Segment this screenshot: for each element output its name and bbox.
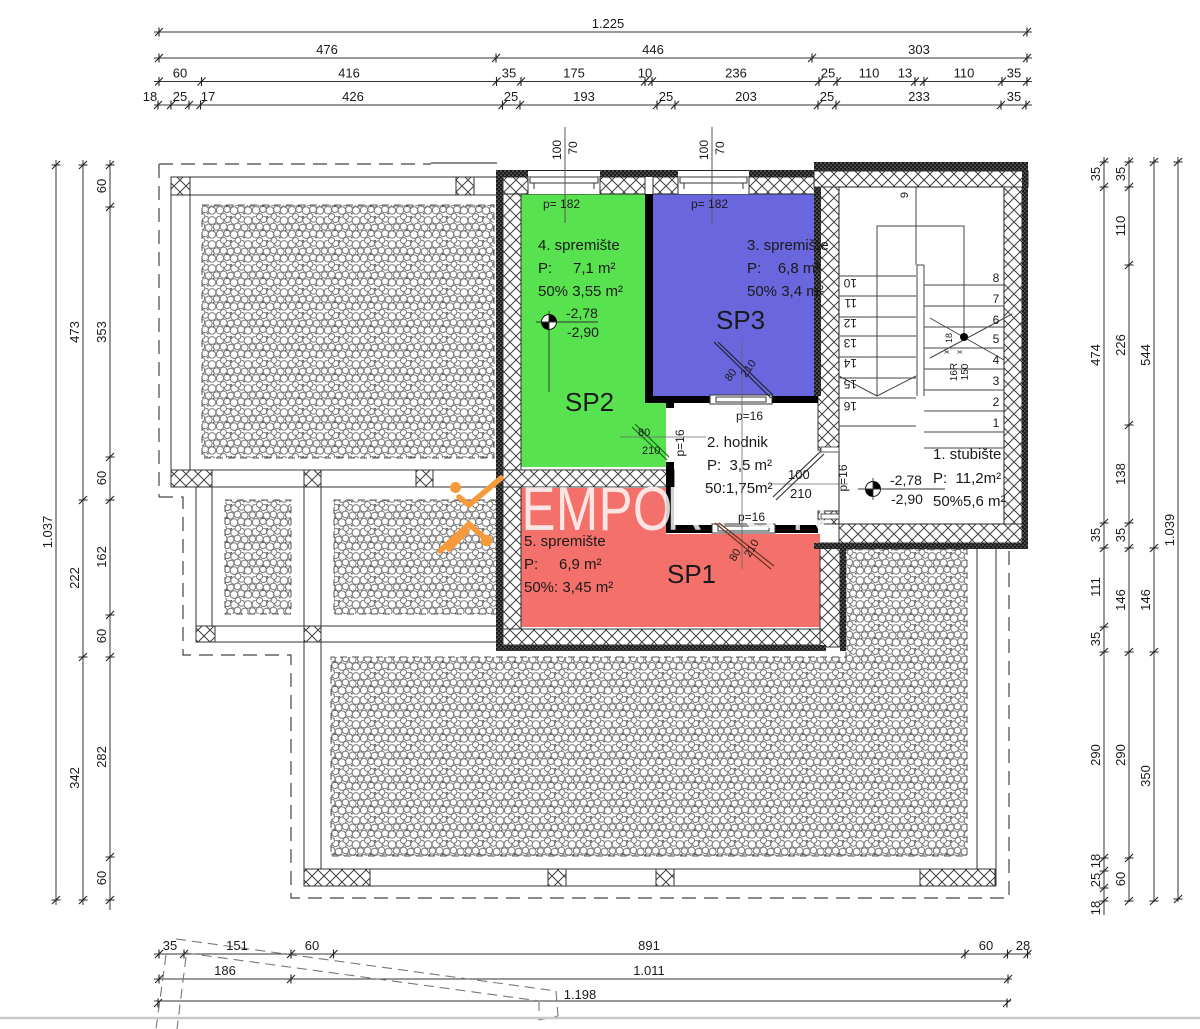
svg-text:18: 18 — [1088, 854, 1103, 868]
svg-text:146: 146 — [1113, 589, 1128, 611]
svg-text:25: 25 — [821, 66, 835, 81]
svg-text:186: 186 — [214, 963, 236, 978]
svg-text:28: 28 — [1016, 938, 1030, 953]
svg-text:35: 35 — [1113, 528, 1128, 542]
svg-text:1.037: 1.037 — [40, 516, 55, 549]
svg-text:-2,78: -2,78 — [890, 472, 922, 488]
svg-text:x: x — [942, 350, 951, 354]
svg-text:-2,90: -2,90 — [891, 491, 923, 507]
svg-text:35: 35 — [1088, 167, 1103, 181]
svg-text:473: 473 — [67, 321, 82, 343]
svg-text:2: 2 — [993, 395, 1000, 409]
svg-text:151: 151 — [226, 938, 248, 953]
svg-text:7: 7 — [993, 292, 1000, 306]
svg-text:50%5,6 m²: 50%5,6 m² — [933, 493, 1006, 510]
svg-text:25: 25 — [820, 89, 834, 104]
svg-text:474: 474 — [1088, 344, 1103, 366]
svg-text:150: 150 — [960, 363, 971, 380]
svg-text:146: 146 — [1138, 589, 1153, 611]
svg-text:303: 303 — [908, 42, 930, 57]
svg-text:282: 282 — [94, 746, 109, 768]
svg-text:SP2: SP2 — [565, 387, 614, 417]
svg-text:35: 35 — [1088, 528, 1103, 542]
svg-text:100: 100 — [697, 140, 711, 160]
svg-text:138: 138 — [1113, 463, 1128, 485]
svg-text:18: 18 — [1088, 901, 1103, 915]
svg-text:5. spremište: 5. spremište — [524, 533, 606, 550]
svg-text:25: 25 — [1088, 873, 1103, 887]
svg-text:226: 226 — [1113, 334, 1128, 356]
svg-text:10: 10 — [638, 66, 652, 81]
svg-text:3. spremište: 3. spremište — [747, 237, 829, 254]
svg-text:P: 6,8 m²: P: 6,8 m² — [747, 260, 820, 277]
svg-text:11: 11 — [844, 296, 857, 310]
svg-text:SP1: SP1 — [667, 559, 716, 589]
svg-text:1: 1 — [993, 416, 1000, 430]
svg-text:350: 350 — [1138, 765, 1153, 787]
svg-text:25: 25 — [504, 89, 518, 104]
svg-text:16R: 16R — [949, 363, 960, 381]
svg-text:426: 426 — [342, 89, 364, 104]
svg-text:70: 70 — [713, 141, 727, 155]
svg-text:60: 60 — [94, 471, 109, 485]
svg-text:100: 100 — [550, 140, 564, 160]
svg-text:60: 60 — [94, 629, 109, 643]
svg-text:1.225: 1.225 — [592, 16, 625, 31]
svg-text:4. spremište: 4. spremište — [538, 237, 620, 254]
svg-text:12: 12 — [843, 316, 857, 330]
svg-text:p= 182: p= 182 — [691, 197, 728, 211]
svg-text:193: 193 — [573, 89, 595, 104]
svg-text:891: 891 — [638, 938, 660, 953]
svg-text:203: 203 — [735, 89, 757, 104]
svg-text:2. hodnik: 2. hodnik — [707, 434, 768, 451]
svg-text:25: 25 — [659, 89, 673, 104]
svg-text:60: 60 — [1113, 872, 1128, 886]
svg-text:50% 3,4 m²: 50% 3,4 m² — [747, 283, 824, 300]
svg-text:p= 182: p= 182 — [543, 197, 580, 211]
svg-text:P: 6,9 m²: P: 6,9 m² — [524, 556, 602, 573]
svg-text:222: 222 — [67, 567, 82, 589]
svg-text:60: 60 — [305, 938, 319, 953]
svg-text:p=16: p=16 — [673, 429, 687, 456]
svg-text:110: 110 — [859, 66, 880, 81]
svg-text:35: 35 — [163, 938, 177, 953]
svg-text:5: 5 — [993, 332, 1000, 346]
svg-text:175: 175 — [563, 66, 585, 81]
svg-text:25: 25 — [173, 89, 187, 104]
svg-text:10: 10 — [843, 276, 857, 290]
svg-text:1.011: 1.011 — [633, 963, 665, 978]
svg-text:16: 16 — [843, 399, 857, 413]
svg-text:SP3: SP3 — [716, 305, 765, 335]
svg-text:1.039: 1.039 — [1162, 514, 1177, 547]
svg-text:476: 476 — [316, 42, 338, 57]
svg-text:236: 236 — [725, 66, 747, 81]
svg-text:-2,90: -2,90 — [567, 324, 599, 340]
svg-text:35: 35 — [1113, 167, 1128, 181]
svg-text:P: 7,1 m²: P: 7,1 m² — [538, 260, 616, 277]
svg-text:6: 6 — [993, 313, 1000, 327]
svg-text:1. stubište: 1. stubište — [933, 446, 1001, 463]
svg-text:70: 70 — [566, 141, 580, 155]
svg-text:18: 18 — [143, 89, 157, 104]
svg-text:17: 17 — [201, 89, 215, 104]
svg-text:x: x — [955, 350, 964, 354]
svg-text:210: 210 — [790, 486, 812, 501]
svg-text:-2,78: -2,78 — [566, 305, 598, 321]
svg-text:80: 80 — [638, 427, 650, 439]
svg-text:544: 544 — [1138, 344, 1153, 366]
svg-text:342: 342 — [67, 767, 82, 789]
svg-text:50% 3,55 m²: 50% 3,55 m² — [538, 283, 623, 300]
svg-text:60: 60 — [94, 871, 109, 885]
svg-text:P: 3,5 m²: P: 3,5 m² — [707, 457, 772, 474]
svg-text:18: 18 — [944, 333, 954, 343]
svg-text:162: 162 — [94, 546, 109, 568]
svg-text:14: 14 — [843, 356, 857, 370]
svg-text:110: 110 — [954, 66, 975, 81]
svg-text:35: 35 — [1007, 66, 1021, 81]
svg-text:8: 8 — [993, 271, 1000, 285]
svg-text:9: 9 — [899, 192, 911, 198]
svg-text:60: 60 — [173, 66, 187, 81]
svg-text:233: 233 — [908, 89, 930, 104]
svg-text:111: 111 — [1088, 577, 1103, 597]
svg-text:353: 353 — [94, 321, 109, 343]
svg-text:P: 11,2m²: P: 11,2m² — [933, 470, 1001, 487]
svg-text:110: 110 — [1113, 216, 1128, 237]
svg-text:35: 35 — [1007, 89, 1021, 104]
svg-text:290: 290 — [1113, 744, 1128, 766]
svg-text:35: 35 — [502, 66, 516, 81]
svg-text:3: 3 — [993, 374, 1000, 388]
svg-text:446: 446 — [642, 42, 664, 57]
svg-text:100: 100 — [788, 467, 810, 482]
svg-text:p=16: p=16 — [736, 409, 763, 423]
svg-text:50:1,75m²: 50:1,75m² — [705, 480, 773, 497]
svg-text:35: 35 — [1088, 632, 1103, 646]
svg-text:4: 4 — [993, 353, 1000, 367]
svg-text:416: 416 — [338, 66, 360, 81]
svg-text:p=16: p=16 — [836, 464, 850, 491]
svg-text:13: 13 — [843, 336, 857, 350]
svg-text:15: 15 — [843, 377, 857, 391]
svg-text:50%: 3,45 m²: 50%: 3,45 m² — [524, 579, 613, 596]
svg-text:13: 13 — [898, 66, 912, 81]
svg-text:1.198: 1.198 — [564, 987, 597, 1002]
svg-text:210: 210 — [642, 445, 660, 457]
svg-text:290: 290 — [1088, 744, 1103, 766]
svg-text:60: 60 — [979, 938, 993, 953]
svg-text:60: 60 — [94, 179, 109, 193]
